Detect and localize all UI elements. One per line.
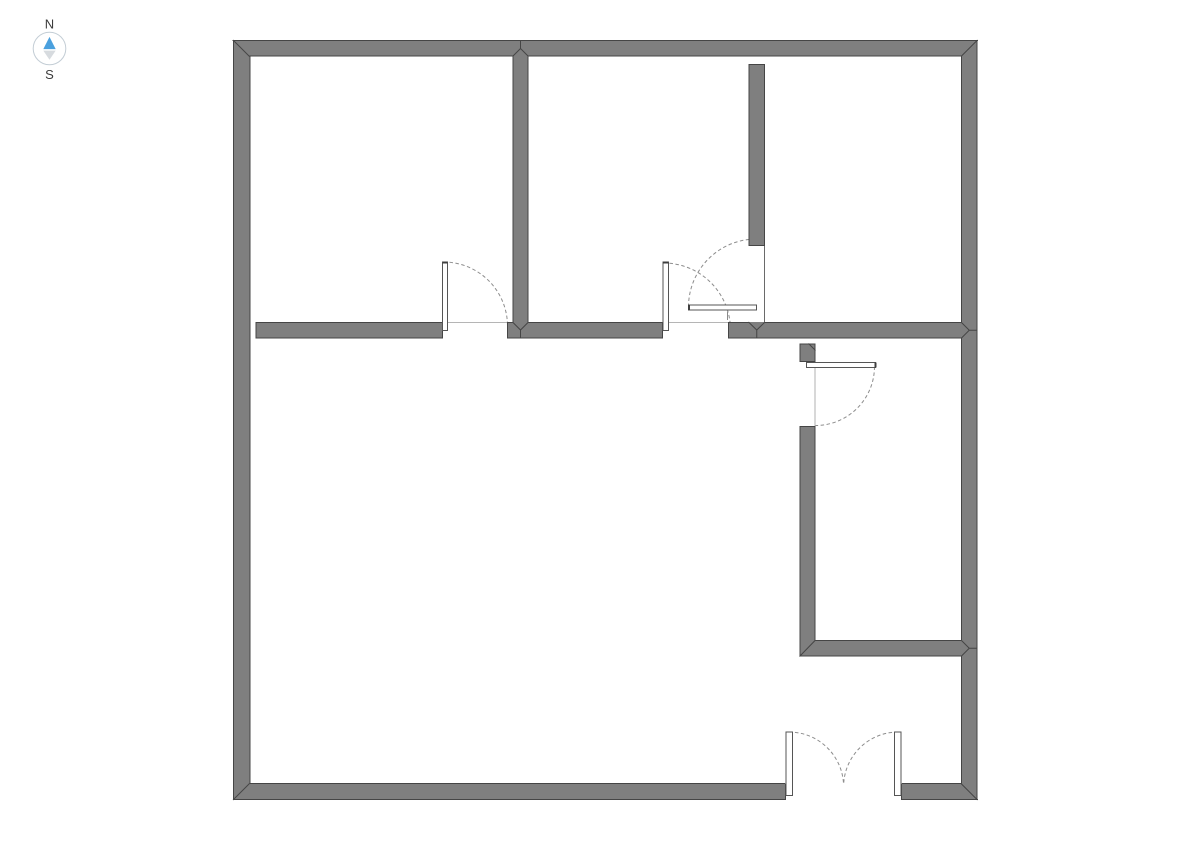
svg-text:N: N bbox=[45, 17, 54, 32]
svg-text:S: S bbox=[45, 67, 54, 82]
